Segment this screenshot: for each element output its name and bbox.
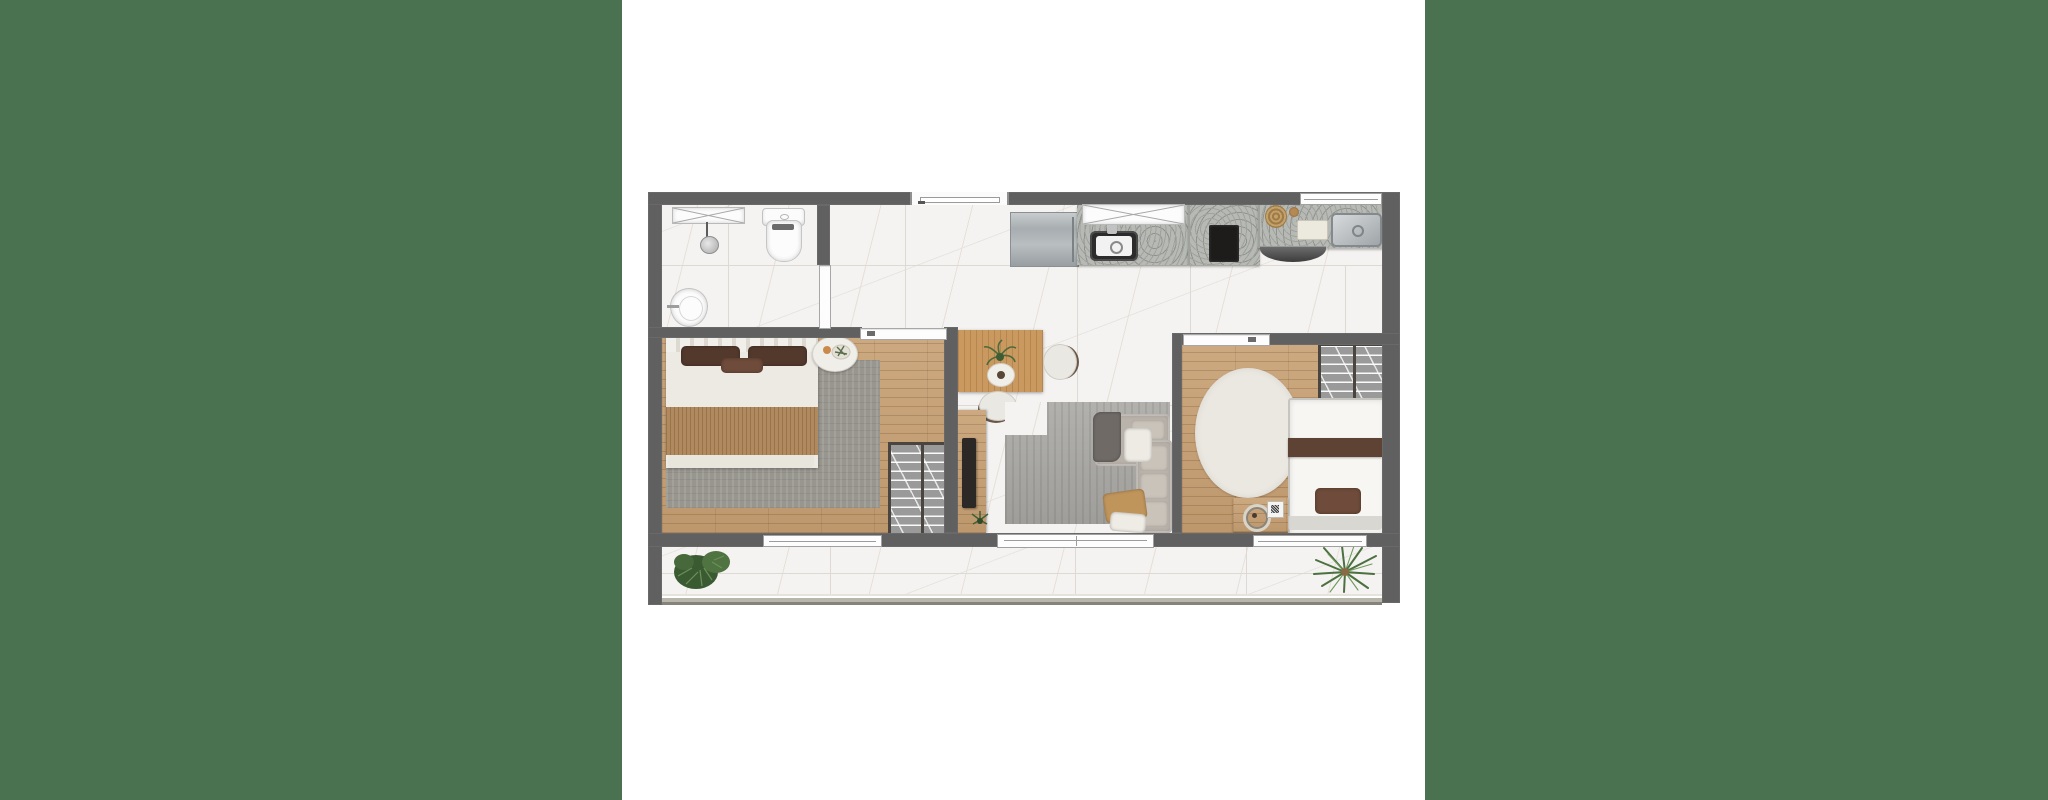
bedroom1-window bbox=[763, 535, 882, 547]
bed2-throw-band bbox=[1288, 438, 1382, 457]
sofa-dark-throw bbox=[1093, 412, 1121, 462]
bedside-decor bbox=[813, 337, 857, 371]
wall-bedroom1-right bbox=[944, 327, 958, 533]
shower-head bbox=[700, 236, 719, 254]
tile-joint bbox=[662, 573, 1382, 574]
sofa-white-pillow bbox=[1124, 428, 1152, 462]
tile-joint bbox=[1345, 265, 1346, 333]
tile-joint bbox=[1190, 265, 1191, 333]
fridge-handle bbox=[1072, 217, 1074, 262]
shower-x-icon bbox=[673, 208, 744, 223]
balcony-sliding-door bbox=[997, 534, 1154, 548]
service-window bbox=[1300, 193, 1382, 205]
kitchen-sink-drain bbox=[1110, 241, 1123, 254]
shower-box bbox=[672, 207, 745, 224]
door-track-tick bbox=[1248, 337, 1256, 342]
balcony-railing bbox=[662, 594, 1382, 605]
entry-door-leaf bbox=[920, 197, 1000, 203]
plate-center bbox=[997, 371, 1005, 379]
bed-blanket bbox=[666, 407, 818, 455]
small-bowl bbox=[1289, 207, 1299, 217]
tile-joint bbox=[1075, 547, 1076, 594]
tile-joint bbox=[1077, 265, 1078, 405]
wall-top bbox=[648, 192, 1400, 205]
wardrobe-2 bbox=[1318, 343, 1388, 404]
entry-door-opening bbox=[910, 192, 1009, 205]
bed-foot-sheet bbox=[668, 455, 814, 468]
kitchen-sink bbox=[1090, 231, 1138, 261]
cutting-board bbox=[1297, 220, 1328, 240]
balcony-plant-left bbox=[672, 546, 734, 592]
floor-plan-canvas bbox=[0, 0, 2048, 800]
balcony-floor bbox=[662, 547, 1382, 594]
apartment-floor-plan bbox=[648, 192, 1400, 605]
double-bed bbox=[666, 336, 818, 468]
dining-chair-right bbox=[1043, 344, 1077, 380]
bed2-headboard bbox=[1288, 516, 1382, 530]
tile-joint bbox=[905, 205, 906, 333]
service-sink-drain bbox=[1352, 225, 1364, 237]
living-floor-notch bbox=[1005, 402, 1047, 435]
lumbar-pillow bbox=[721, 358, 763, 373]
bedroom1-sliding-door bbox=[860, 328, 947, 340]
left-green-panel bbox=[0, 0, 622, 800]
washbasin-faucet bbox=[667, 305, 679, 308]
table-plate bbox=[987, 363, 1015, 387]
bedside-table bbox=[812, 336, 858, 372]
right-green-panel bbox=[1425, 0, 2048, 800]
frame-art bbox=[1271, 505, 1279, 513]
tile-joint bbox=[1246, 547, 1247, 594]
bedroom2-sliding-door bbox=[1183, 334, 1270, 346]
entry-door-stop bbox=[918, 201, 925, 204]
bedroom2-oval-rug bbox=[1195, 368, 1301, 498]
desk-frame bbox=[1267, 501, 1284, 518]
service-sink bbox=[1331, 213, 1382, 247]
toilet-seat-hinge bbox=[772, 224, 794, 230]
bed2-pillow bbox=[1315, 488, 1361, 514]
bathroom-door bbox=[819, 265, 831, 329]
kitchen-window-box bbox=[1082, 204, 1185, 225]
single-bed bbox=[1288, 398, 1386, 536]
tv bbox=[962, 438, 976, 508]
tray-center bbox=[1252, 513, 1257, 518]
tile-joint bbox=[830, 547, 831, 594]
washbasin-bowl bbox=[679, 296, 703, 321]
toilet-bowl bbox=[766, 220, 802, 262]
fridge bbox=[1010, 212, 1079, 267]
sofa-white-pillow-2 bbox=[1109, 511, 1147, 533]
cooktop bbox=[1209, 225, 1239, 262]
wall-bedroom2-left bbox=[1172, 333, 1182, 533]
balcony-palm-plant bbox=[1310, 544, 1380, 596]
door-track-tick bbox=[867, 331, 875, 336]
woven-basket bbox=[1265, 205, 1287, 228]
wall-bathroom-right bbox=[817, 205, 830, 265]
console-plant bbox=[970, 510, 990, 530]
bedroom2-window bbox=[1253, 535, 1367, 547]
window-x-icon bbox=[1083, 205, 1184, 224]
balcony-door-divider bbox=[1076, 536, 1077, 546]
